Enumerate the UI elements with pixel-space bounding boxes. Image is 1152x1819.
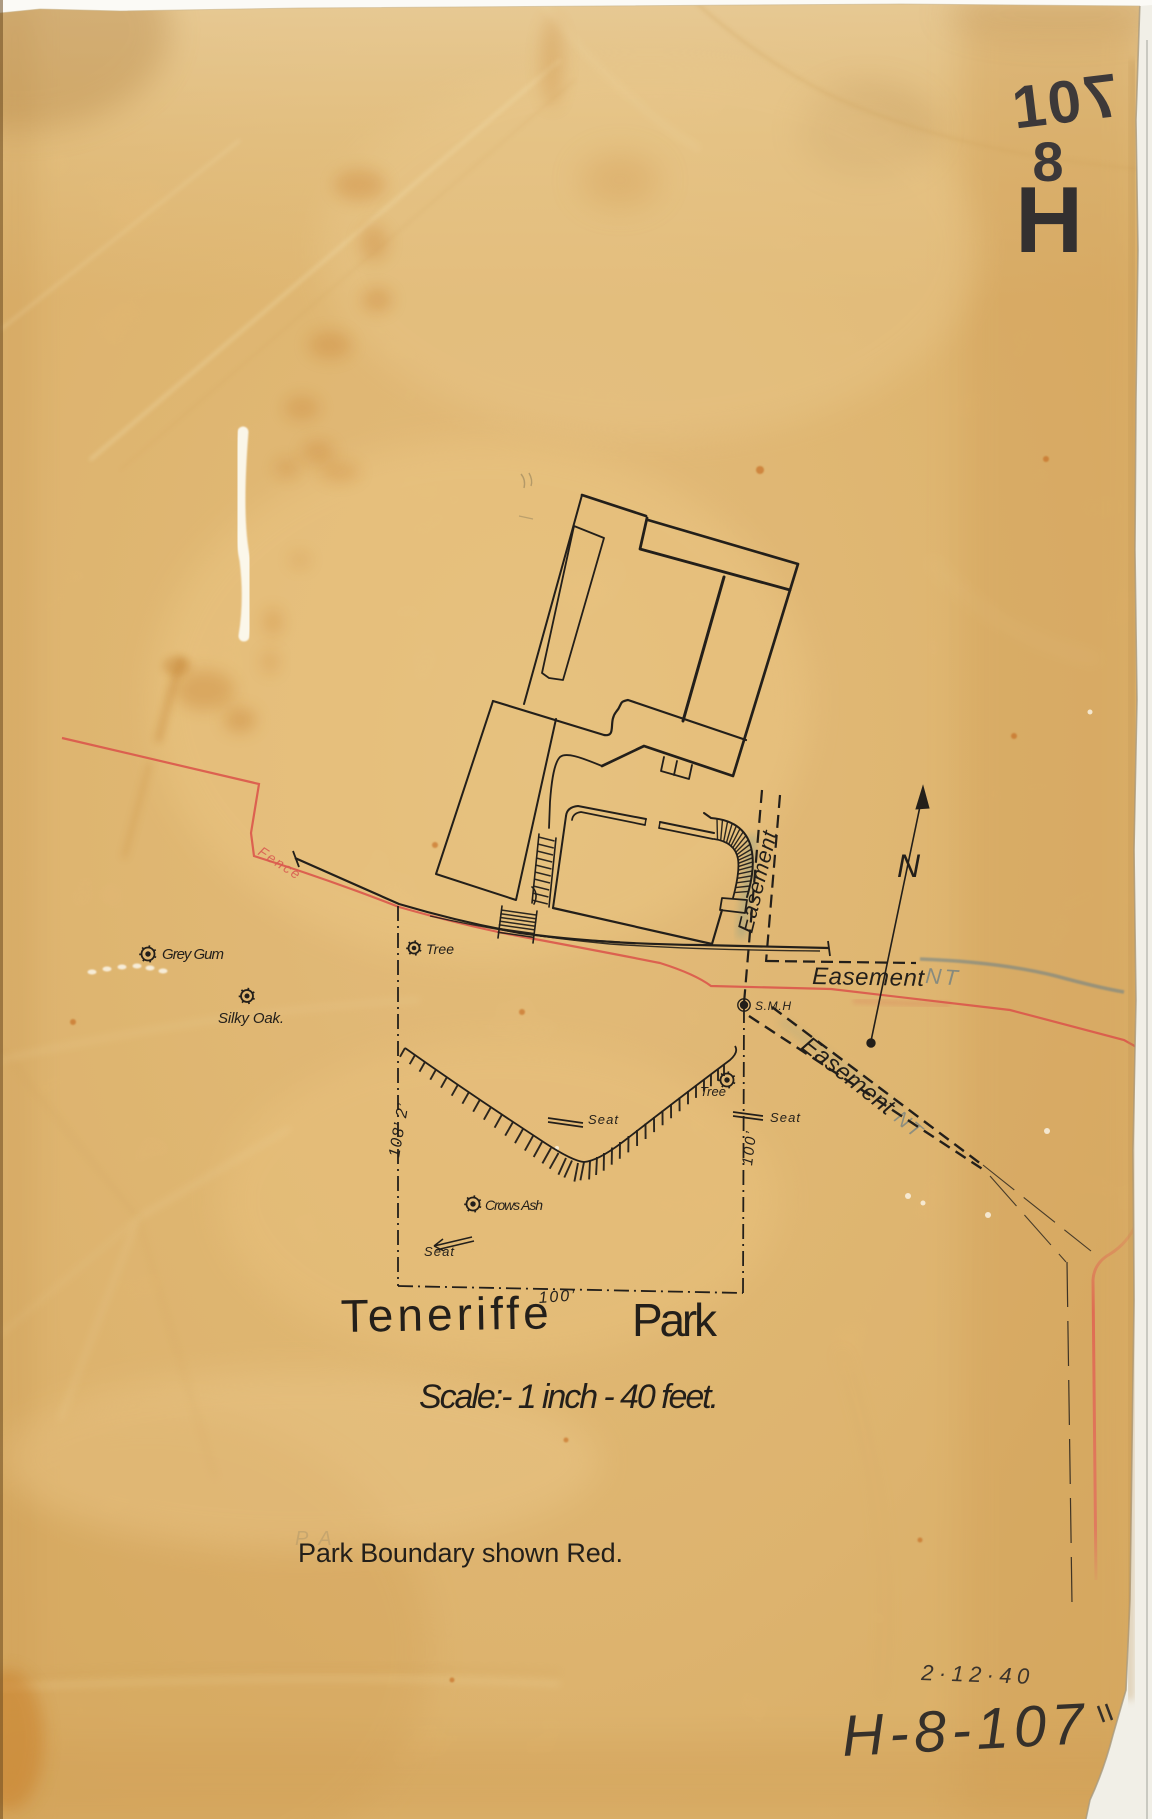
svg-text:Crows Ash: Crows Ash bbox=[485, 1197, 543, 1213]
svg-text:Park Boundary shown Red.: Park Boundary shown Red. bbox=[298, 1538, 623, 1568]
svg-text:S.M.H: S.M.H bbox=[755, 999, 791, 1013]
svg-text:N: N bbox=[897, 848, 921, 884]
svg-text:Silky Oak.: Silky Oak. bbox=[218, 1010, 284, 1027]
svg-text:NT: NT bbox=[925, 963, 962, 990]
svg-text:Teneriffe: Teneriffe bbox=[340, 1286, 549, 1342]
svg-text:H: H bbox=[1015, 167, 1083, 272]
svg-text:Seat: Seat bbox=[424, 1244, 455, 1259]
svg-text:Tree: Tree bbox=[426, 941, 454, 957]
svg-text:Scale:- 1 inch - 40 feet.: Scale:- 1 inch - 40 feet. bbox=[419, 1378, 719, 1416]
svg-text:Park: Park bbox=[632, 1294, 718, 1346]
svg-text:Seat: Seat bbox=[770, 1110, 801, 1125]
svg-text:Grey Gum: Grey Gum bbox=[162, 946, 224, 963]
svg-text:Easement: Easement bbox=[812, 963, 926, 992]
svg-text:Seat: Seat bbox=[588, 1112, 619, 1127]
svg-text:Tree: Tree bbox=[700, 1084, 726, 1099]
